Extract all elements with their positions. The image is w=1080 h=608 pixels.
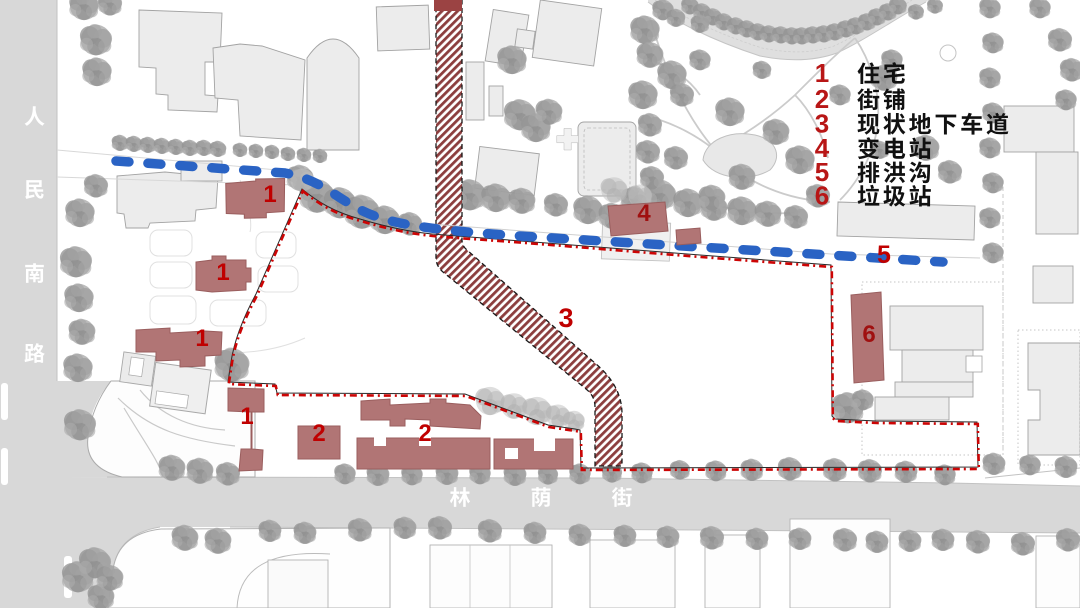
svg-text:2: 2 [418, 420, 431, 447]
svg-text:6: 6 [862, 321, 875, 348]
svg-text:1: 1 [195, 325, 208, 352]
svg-text:1: 1 [216, 259, 229, 286]
svg-text:2: 2 [312, 420, 325, 447]
svg-text:5: 5 [877, 241, 891, 269]
svg-text:3: 3 [558, 303, 573, 333]
svg-text:6: 6 [815, 181, 829, 211]
svg-text:1: 1 [263, 181, 276, 208]
svg-text:4: 4 [637, 200, 651, 227]
svg-text:1: 1 [240, 403, 253, 430]
